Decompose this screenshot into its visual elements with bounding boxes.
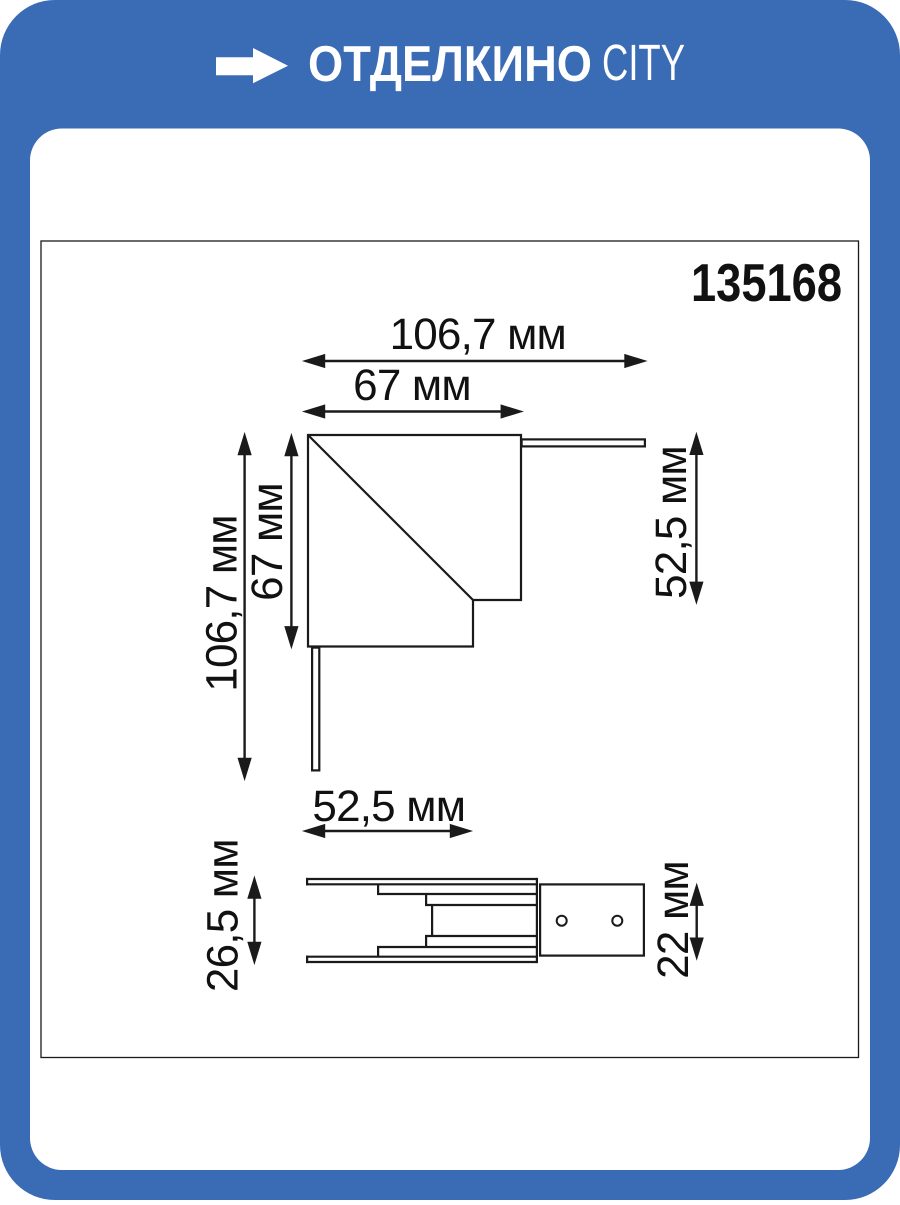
svg-text:ОТДЕЛКИНО: ОТДЕЛКИНО [308,35,592,92]
svg-text:67 мм: 67 мм [243,483,292,601]
svg-text:22 мм: 22 мм [649,861,698,979]
svg-text:106,7 мм: 106,7 мм [390,310,566,359]
svg-text:52,5 мм: 52,5 мм [647,446,696,599]
svg-text:52,5 мм: 52,5 мм [312,782,465,831]
svg-text:135168: 135168 [691,254,842,313]
svg-text:106,7 мм: 106,7 мм [198,515,247,691]
svg-text:CITY: CITY [602,34,685,91]
svg-text:26,5 мм: 26,5 мм [199,839,248,992]
svg-text:67 мм: 67 мм [353,361,471,410]
